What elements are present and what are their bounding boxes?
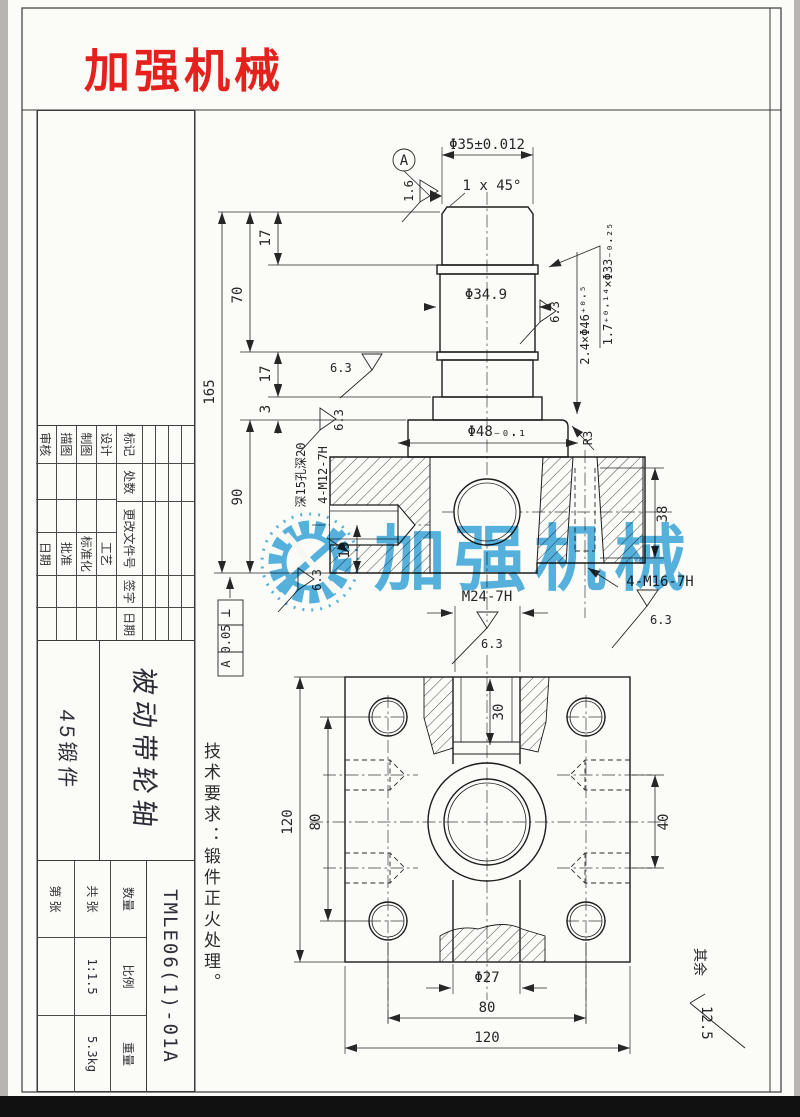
qty-label: 数量	[110, 861, 146, 938]
dim-chamfer: 1 x 45°	[462, 178, 521, 194]
tech-requirements: 技术要求：锻件正火处理。	[198, 742, 223, 1032]
scale-label: 比例	[110, 938, 146, 1016]
datum-roughness: 1.6	[402, 180, 416, 202]
scan-bottom-edge	[0, 1096, 800, 1117]
sheets-total: 共 张	[74, 861, 110, 938]
row-approve: 批准	[56, 533, 76, 577]
dim-120-bottom: 120	[474, 1030, 499, 1046]
roughness-bottom-left: 6.3	[310, 569, 324, 591]
dim-19: 19	[337, 542, 353, 559]
roughness-relief: 6.3	[548, 301, 562, 323]
row-trace: 描图	[56, 426, 76, 464]
rev-header-count: 处数	[116, 464, 142, 502]
dim-80-bottom: 80	[479, 1000, 496, 1016]
scanned-drawing-sheet: A ⊥ 0.05 A Φ35±0.012 1 x 45° 1.6 Φ34.9	[0, 0, 800, 1117]
title-block: 标记 处数 更改文件号 签字 日期 设计 工艺 制图	[37, 110, 195, 1092]
tol-datum: A	[219, 660, 233, 668]
rev-header-file: 更改文件号	[116, 502, 142, 577]
number-section: TMLE06(1)-01A 数量 比例 重量 共 张 1:1.5 5.3kg 第…	[38, 861, 194, 1092]
dim-top-dia: Φ35±0.012	[449, 137, 525, 153]
dim-90: 90	[230, 489, 246, 506]
name-section: 被动带轮轴 45锻件	[38, 641, 194, 861]
row-process: 工艺	[96, 533, 116, 577]
row-draft: 制图	[76, 426, 96, 464]
material: 45锻件	[53, 709, 83, 793]
rest-label: 其余	[691, 948, 708, 976]
sheet-number: 第 张	[37, 861, 74, 938]
dim-38: 38	[655, 506, 671, 523]
row-design: 设计	[96, 426, 116, 464]
tol-value: 0.05	[219, 625, 233, 654]
dim-mid-dia: Φ34.9	[465, 287, 507, 303]
rev-header-date: 日期	[116, 608, 142, 640]
part-name: 被动带轮轴	[128, 666, 167, 835]
dim-17b: 17	[258, 366, 274, 383]
centerlines	[310, 192, 672, 1024]
dim-30: 30	[491, 704, 507, 721]
dim-flange-dia: Φ48₋₀.₁	[467, 424, 526, 440]
label-m24: M24-7H	[462, 589, 513, 605]
row-date: 日期	[36, 533, 56, 577]
row-check: 审核	[36, 426, 56, 464]
rev-header-mark: 标记	[116, 426, 142, 464]
label-m16: 4-M16-7H	[626, 574, 693, 590]
extension-lines	[214, 147, 664, 1054]
scale-value: 1:1.5	[74, 938, 110, 1016]
dim-80-left: 80	[308, 814, 324, 831]
dim-165: 165	[202, 379, 218, 404]
roughness-m12: 6.3	[332, 409, 346, 431]
dim-hole-27: Φ27	[474, 970, 499, 986]
dim-fillet: R3	[581, 431, 595, 445]
dim-relief: 2.4×Φ46⁺⁰·⁵	[578, 285, 592, 364]
rest-value: 12.5	[698, 1006, 714, 1040]
dim-17a: 17	[258, 230, 274, 247]
tol-symbol: ⊥	[218, 609, 234, 617]
roughness-m24: 6.3	[481, 637, 503, 651]
perpendicularity-frame: ⊥ 0.05 A	[218, 600, 243, 676]
m12-tapped-hole	[330, 505, 415, 545]
dim-3: 3	[258, 405, 274, 413]
dim-groove: 1.7⁺⁰·¹⁴×Φ33₋₀.₂₅	[601, 223, 615, 346]
weight-label: 重量	[110, 1016, 146, 1092]
datum-a-symbol: A	[393, 149, 442, 202]
datum-letter: A	[400, 153, 409, 169]
dim-40-right: 40	[656, 814, 672, 831]
dim-120-left: 120	[280, 809, 296, 834]
title-block-empty	[38, 111, 194, 426]
rev-header-sign: 签字	[116, 576, 142, 608]
dim-70: 70	[230, 287, 246, 304]
weight-value: 5.3kg	[74, 1016, 110, 1092]
row-standard: 标准化	[76, 533, 96, 577]
drawing-number: TMLE06(1)-01A	[160, 889, 182, 1064]
brand-logo: 加强机械	[84, 48, 284, 94]
revision-table: 标记 处数 更改文件号 签字 日期 设计 工艺 制图	[38, 426, 194, 641]
label-m12-note: 深15孔深20	[294, 443, 308, 508]
rest-roughness: 其余 12.5	[690, 948, 745, 1048]
roughness-step: 6.3	[330, 361, 352, 375]
roughness-m16: 6.3	[650, 613, 672, 627]
label-m12: 4-M12-7H	[316, 446, 330, 504]
central-bore	[454, 479, 520, 545]
